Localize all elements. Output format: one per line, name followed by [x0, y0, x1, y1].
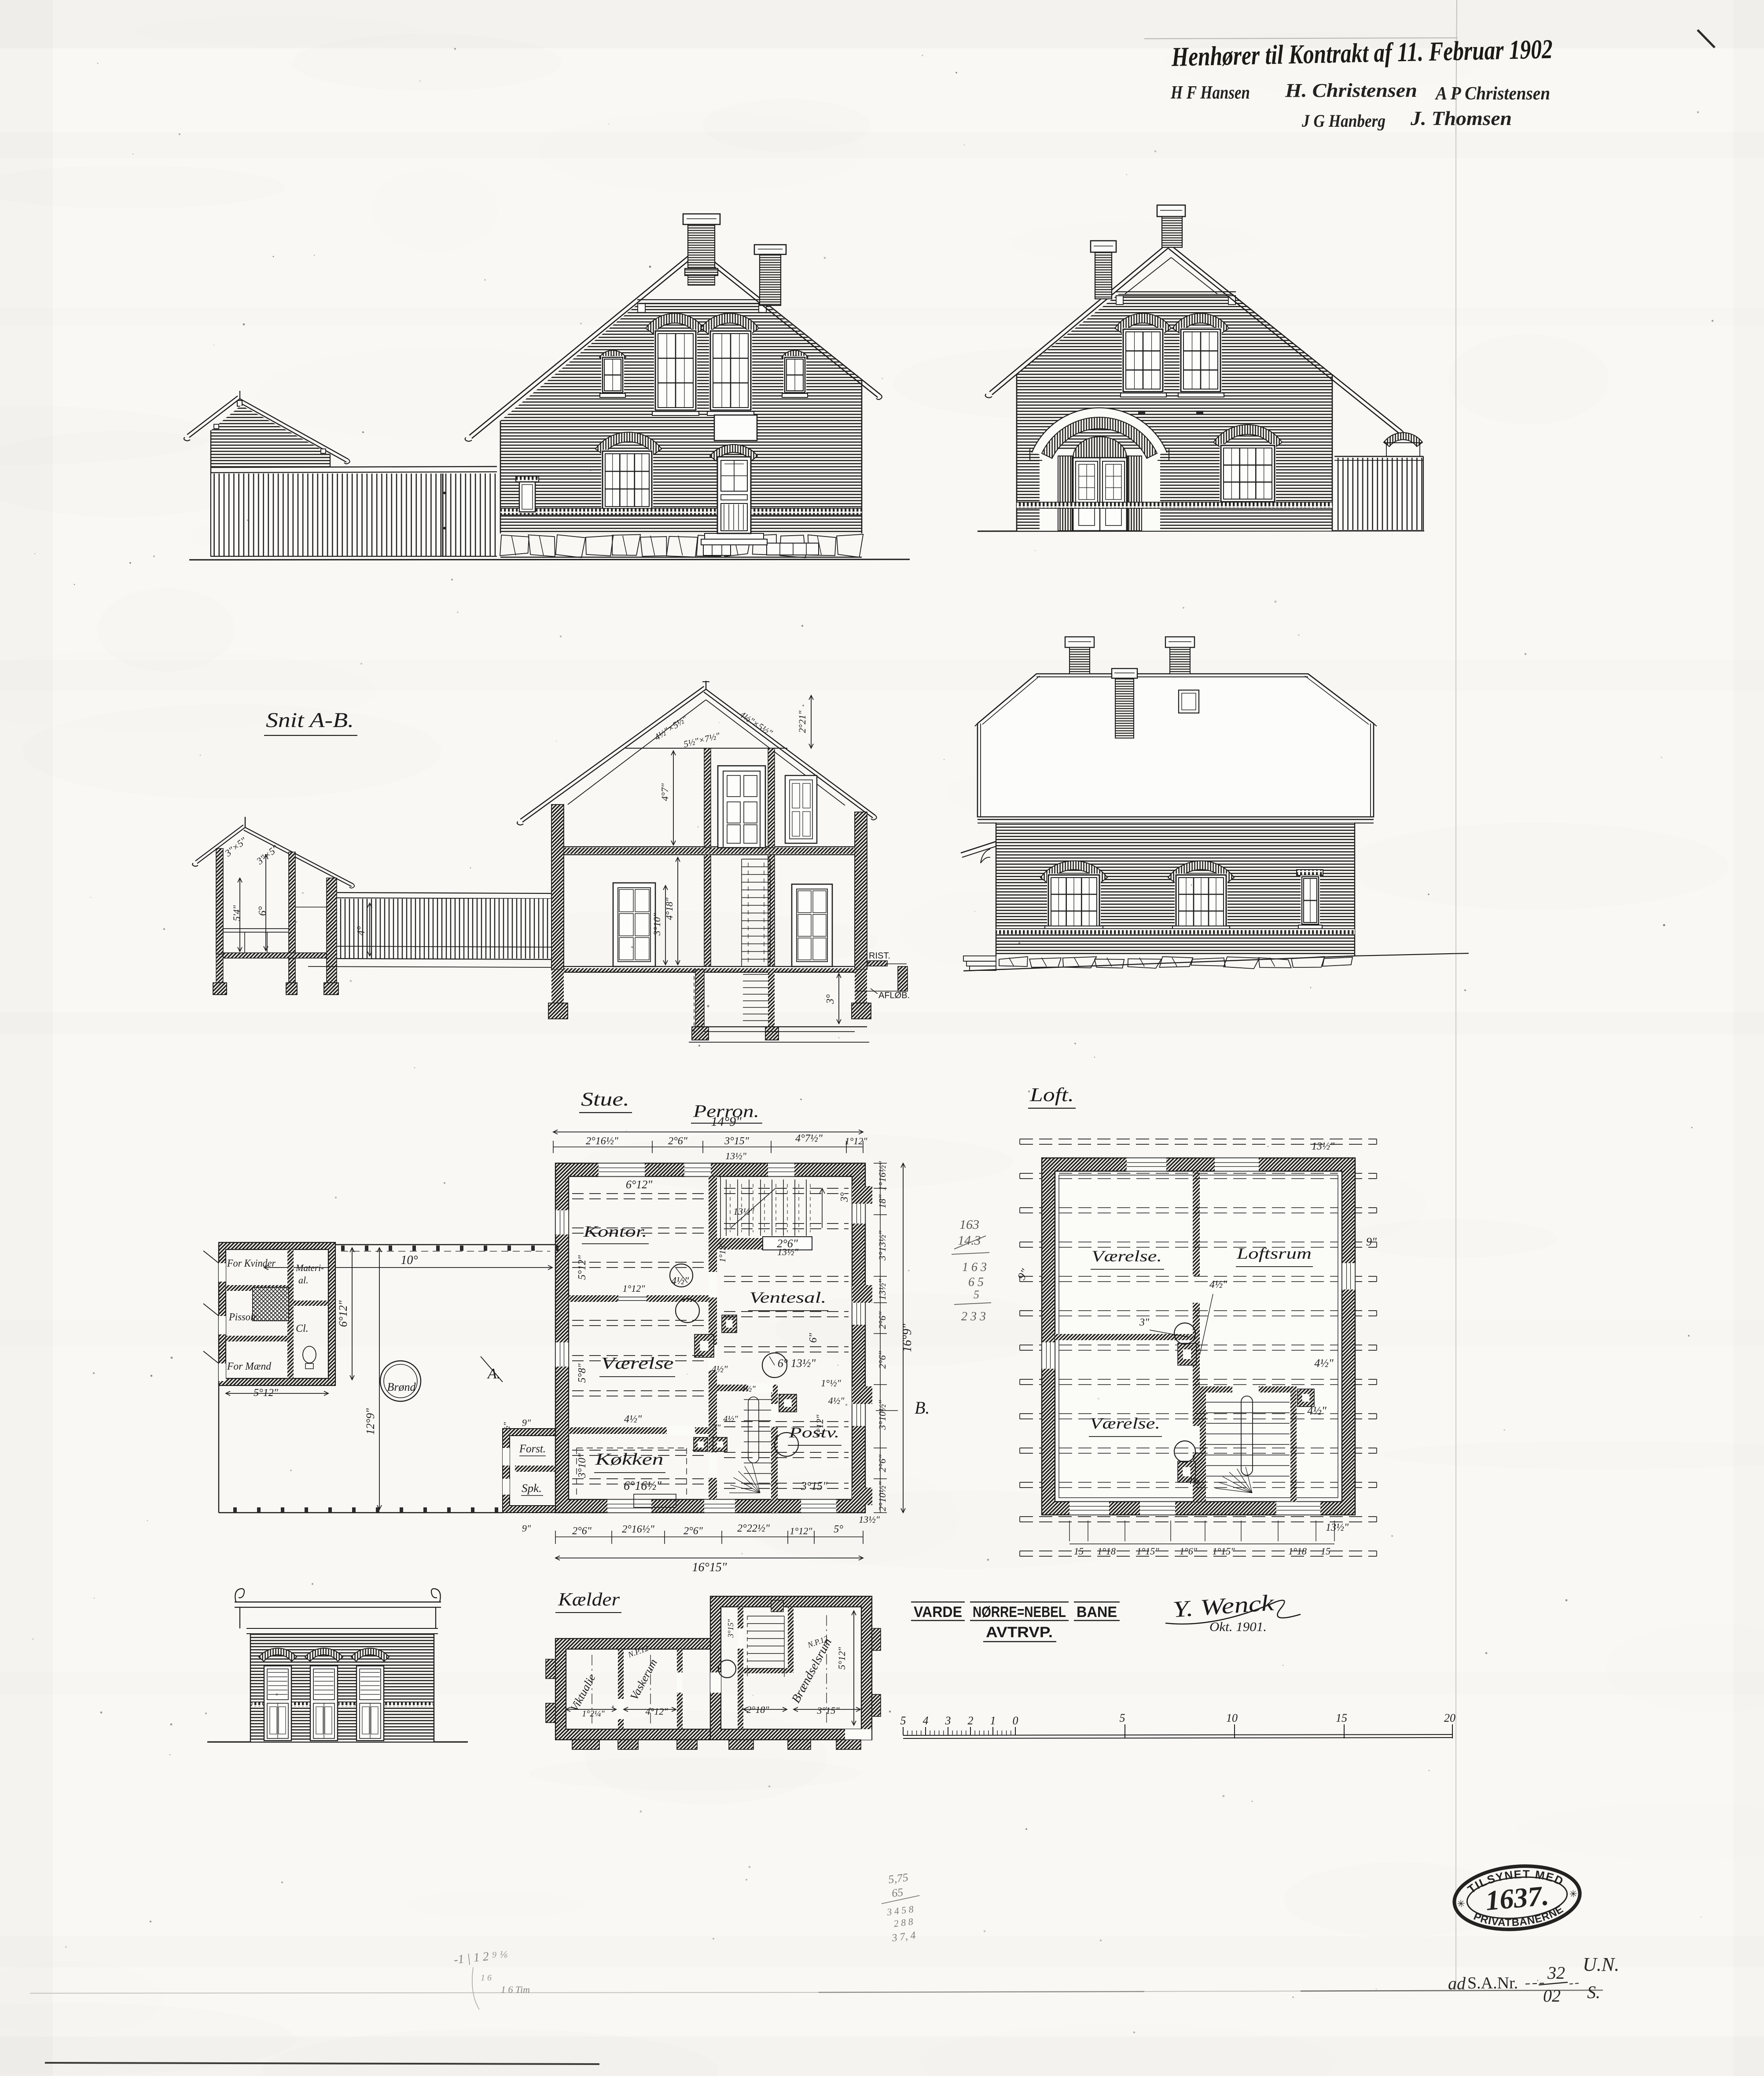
svg-text:3°: 3° — [839, 1192, 850, 1202]
svg-text:2°6": 2°6" — [877, 1454, 888, 1472]
svg-text:4½": 4½" — [723, 1414, 738, 1424]
svg-text:6 5: 6 5 — [968, 1275, 984, 1289]
svg-text:3°15": 3°15" — [726, 1619, 735, 1638]
svg-text:1°2¼": 1°2¼" — [582, 1709, 605, 1719]
svg-text:15: 15 — [1336, 1712, 1347, 1724]
svg-text:4½": 4½" — [741, 1384, 756, 1394]
svg-text:2°22½": 2°22½" — [737, 1523, 770, 1534]
svg-text:18": 18" — [877, 1194, 888, 1209]
svg-text:1 6 Tim: 1 6 Tim — [501, 1984, 530, 1995]
svg-text:2°6": 2°6" — [684, 1525, 703, 1537]
svg-text:A P Christensen: A P Christensen — [1434, 84, 1550, 104]
svg-text:6° 13½": 6° 13½" — [778, 1357, 816, 1370]
svg-text:9": 9" — [522, 1417, 531, 1428]
svg-text:al.: al. — [298, 1275, 309, 1286]
svg-text:2°6": 2°6" — [572, 1525, 592, 1537]
svg-text:5°12": 5°12" — [814, 1415, 825, 1437]
svg-text:1637.: 1637. — [1484, 1880, 1550, 1916]
svg-text:Materi-: Materi- — [295, 1262, 324, 1273]
svg-text:4½": 4½" — [671, 1275, 689, 1287]
svg-text:2°10½": 2°10½" — [877, 1481, 888, 1511]
svg-text:RIST.: RIST. — [869, 951, 890, 961]
svg-text:Kælder: Kælder — [558, 1590, 620, 1610]
svg-text:Brønd: Brønd — [387, 1381, 416, 1393]
svg-text:2°6": 2°6" — [877, 1311, 888, 1329]
svg-text:BANE: BANE — [1077, 1604, 1117, 1620]
svg-text:5: 5 — [900, 1714, 906, 1727]
svg-text:5°12": 5°12" — [254, 1387, 279, 1399]
svg-text:16°15": 16°15" — [692, 1561, 727, 1574]
svg-text:13½": 13½" — [725, 1150, 747, 1161]
svg-text:3°13½": 3°13½" — [877, 1230, 888, 1260]
svg-text:1°12": 1°12" — [622, 1283, 645, 1294]
svg-text:Stue.: Stue. — [581, 1088, 629, 1110]
svg-text:4: 4 — [923, 1714, 929, 1727]
svg-text:Snit A-B.: Snit A-B. — [266, 709, 354, 732]
svg-text:4°7": 4°7" — [659, 783, 670, 801]
svg-text:13½": 13½" — [1326, 1522, 1349, 1533]
svg-text:Cl.: Cl. — [296, 1323, 309, 1334]
svg-text:1 6: 1 6 — [481, 1973, 492, 1983]
svg-text:H F Hansen: H F Hansen — [1170, 83, 1250, 103]
svg-text:3°10½": 3°10½" — [877, 1400, 888, 1430]
svg-text:1°6": 1°6" — [1180, 1546, 1198, 1557]
svg-text:4½": 4½" — [1209, 1279, 1227, 1290]
svg-text:2°16½": 2°16½" — [622, 1524, 655, 1535]
svg-text:B.: B. — [915, 1398, 930, 1418]
svg-text:1 6 3: 1 6 3 — [962, 1260, 987, 1274]
svg-text:13½": 13½" — [733, 1206, 755, 1217]
svg-text:4½": 4½" — [624, 1414, 642, 1425]
svg-text:6°16½": 6°16½" — [624, 1479, 661, 1493]
svg-text:4°7½": 4°7½" — [795, 1133, 823, 1144]
svg-text:For Kvinder: For Kvinder — [227, 1258, 276, 1269]
svg-text:5,75: 5,75 — [888, 1871, 909, 1886]
svg-text:5°8": 5°8" — [577, 1363, 588, 1383]
svg-text:Værelse.: Værelse. — [1090, 1415, 1160, 1432]
svg-text:16°9": 16°9" — [900, 1323, 914, 1352]
svg-text:ad: ad — [1448, 1973, 1466, 1993]
svg-text:3°15": 3°15" — [724, 1135, 750, 1147]
svg-text:5'4": 5'4" — [231, 905, 242, 921]
svg-text:4½": 4½" — [1307, 1404, 1327, 1417]
svg-text:5°12": 5°12" — [577, 1255, 588, 1280]
svg-text:4½: 4½ — [1187, 1475, 1200, 1486]
svg-text:4½": 4½" — [1314, 1357, 1334, 1370]
svg-text:2°16½": 2°16½" — [586, 1135, 619, 1147]
svg-text:For Mænd: For Mænd — [227, 1361, 272, 1372]
svg-text:Ventesal.: Ventesal. — [750, 1289, 827, 1306]
svg-text:✳: ✳ — [1456, 1898, 1466, 1910]
svg-text:3": 3" — [712, 1423, 721, 1433]
svg-text:Loft.: Loft. — [1029, 1084, 1074, 1106]
svg-text:1°16½": 1°16½" — [877, 1161, 888, 1190]
svg-text:14.3: 14.3 — [958, 1233, 981, 1248]
svg-text:U.N.: U.N. — [1583, 1954, 1619, 1975]
svg-text:12°9": 12°9" — [364, 1408, 377, 1435]
svg-text:10: 10 — [1226, 1712, 1238, 1724]
svg-text:10°: 10° — [401, 1253, 418, 1267]
svg-text:S.: S. — [1587, 1982, 1600, 2002]
svg-text:5°12": 5°12" — [836, 1647, 847, 1670]
svg-text:2 3 3: 2 3 3 — [961, 1310, 986, 1323]
svg-text:15: 15 — [1321, 1546, 1330, 1557]
svg-text:Loftsrum: Loftsrum — [1236, 1245, 1312, 1262]
svg-text:Værelse: Værelse — [601, 1354, 674, 1373]
svg-text:VARDE: VARDE — [914, 1604, 962, 1620]
svg-text:20: 20 — [1444, 1712, 1455, 1724]
svg-text:163: 163 — [959, 1217, 979, 1232]
svg-text:65: 65 — [891, 1885, 904, 1900]
svg-text:Kontor.: Kontor. — [583, 1223, 647, 1240]
svg-text:3": 3" — [1139, 1317, 1150, 1328]
svg-text:1°12": 1°12" — [845, 1135, 867, 1146]
svg-text:Værelse.: Værelse. — [1091, 1247, 1162, 1265]
svg-text:13½": 13½" — [777, 1246, 799, 1257]
svg-text:1°15": 1°15" — [1136, 1546, 1159, 1557]
svg-text:13½": 13½" — [1312, 1141, 1335, 1152]
svg-text:6°12": 6°12" — [337, 1301, 349, 1327]
svg-text:3°15": 3°15" — [816, 1705, 840, 1716]
svg-text:S.A.Nr.: S.A.Nr. — [1467, 1974, 1518, 1992]
svg-text:2°6": 2°6" — [668, 1135, 688, 1147]
svg-text:6°: 6° — [257, 906, 268, 916]
svg-text:5°: 5° — [834, 1524, 843, 1535]
svg-text:1: 1 — [990, 1714, 996, 1727]
svg-text:1°15": 1°15" — [1212, 1546, 1235, 1557]
svg-text:3°15": 3°15" — [801, 1480, 827, 1492]
svg-text:6": 6" — [808, 1333, 819, 1343]
svg-text:J. Thomsen: J. Thomsen — [1410, 107, 1512, 129]
svg-text:14°9": 14°9" — [711, 1114, 742, 1129]
svg-text:3°: 3° — [825, 994, 836, 1004]
svg-text:1°18: 1°18 — [1097, 1546, 1116, 1557]
svg-text:4°: 4° — [356, 926, 367, 936]
svg-text:02: 02 — [1543, 1986, 1561, 2006]
svg-text:0: 0 — [1013, 1714, 1018, 1727]
svg-text:H. Christensen: H. Christensen — [1285, 80, 1417, 101]
svg-text:4°12": 4°12" — [645, 1706, 668, 1717]
svg-text:✳: ✳ — [1569, 1888, 1578, 1900]
svg-text:2°21": 2°21" — [797, 710, 808, 733]
svg-text:15: 15 — [1074, 1546, 1084, 1557]
svg-text:9": 9" — [522, 1523, 531, 1534]
svg-text:Køkken: Køkken — [595, 1450, 663, 1469]
svg-text:1°12": 1°12" — [790, 1525, 812, 1536]
svg-text:13½": 13½" — [859, 1514, 880, 1525]
svg-text:5: 5 — [1120, 1712, 1125, 1724]
svg-text:Pissoir: Pissoir — [228, 1312, 257, 1323]
svg-text:1°18: 1°18 — [1288, 1546, 1307, 1557]
svg-text:1°½": 1°½" — [821, 1378, 841, 1389]
svg-text:3°10": 3°10" — [651, 913, 662, 936]
svg-text:5: 5 — [974, 1288, 979, 1301]
svg-text:4½": 4½" — [712, 1363, 728, 1374]
svg-text:2°6": 2°6" — [877, 1351, 888, 1369]
svg-text:Okt. 1901.: Okt. 1901. — [1209, 1620, 1267, 1634]
svg-text:Spk.: Spk. — [522, 1482, 542, 1495]
svg-text:AFLØB.: AFLØB. — [878, 991, 910, 1000]
svg-text:3°10": 3°10" — [577, 1453, 588, 1478]
svg-text:4½": 4½" — [828, 1395, 845, 1406]
svg-text:6°12": 6°12" — [626, 1178, 652, 1191]
svg-text:AVTRVP.: AVTRVP. — [986, 1624, 1053, 1641]
svg-text:Forst.: Forst. — [519, 1442, 546, 1455]
svg-text:3: 3 — [945, 1714, 951, 1727]
svg-text:13½": 13½" — [877, 1279, 888, 1300]
svg-text:2: 2 — [968, 1714, 974, 1727]
svg-text:2 8 8: 2 8 8 — [893, 1916, 914, 1929]
svg-text:J G Hanberg: J G Hanberg — [1301, 111, 1385, 131]
svg-text:9": 9" — [1366, 1235, 1377, 1248]
svg-text:32: 32 — [1547, 1963, 1565, 1983]
svg-text:A.: A. — [487, 1366, 500, 1382]
svg-text:NØRRE=NEBEL: NØRRE=NEBEL — [973, 1604, 1066, 1620]
svg-text:9 ⅙: 9 ⅙ — [492, 1950, 508, 1960]
svg-text:1°12": 1°12" — [718, 1242, 728, 1262]
